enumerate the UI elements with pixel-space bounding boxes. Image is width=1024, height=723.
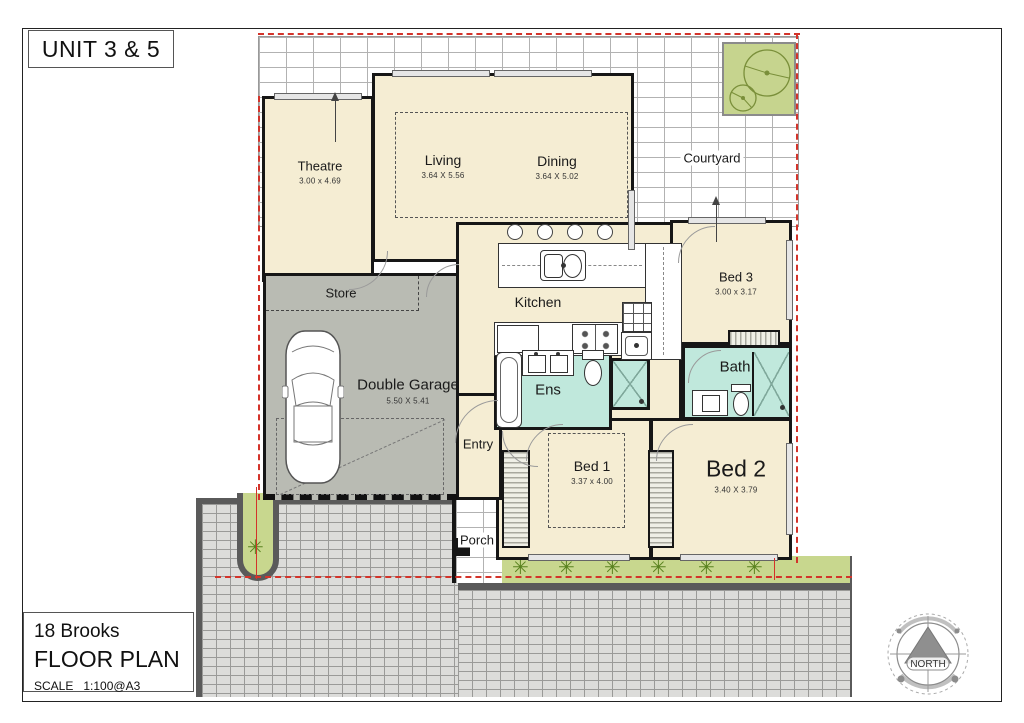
laundry-tub — [621, 332, 652, 360]
living-window-1 — [392, 70, 490, 77]
linen-cupboard — [728, 330, 780, 347]
ens-vanity — [522, 350, 574, 376]
exit-arrow-stem — [335, 100, 336, 142]
bath-vanity — [692, 390, 728, 416]
fridge-space — [497, 325, 539, 353]
doc-title: FLOOR PLAN — [34, 646, 183, 673]
bed2-robe — [648, 450, 674, 548]
ens-toilet-cistern — [582, 350, 604, 360]
car-icon — [282, 328, 344, 486]
shower-mid — [610, 358, 650, 410]
bed2-side-window — [786, 443, 793, 535]
counter-dash-line — [663, 247, 664, 355]
unit-title: UNIT 3 & 5 — [42, 36, 160, 63]
boundary-left — [258, 96, 260, 500]
plant-icon: ✳ — [512, 558, 529, 578]
bed3-side-window — [786, 240, 793, 320]
plant-icon: ✳ — [698, 558, 715, 578]
dining-door-window — [628, 190, 635, 250]
washing-machine — [622, 302, 652, 332]
stool-icon — [567, 224, 583, 240]
bath-shower — [752, 352, 789, 416]
driveway-paving — [196, 498, 458, 697]
living-window-2 — [494, 70, 592, 77]
title-block: 18 Brooks FLOOR PLAN SCALE 1:100@A3 — [23, 612, 194, 692]
courtyard-tree-icon — [722, 42, 796, 116]
boundary-tick — [774, 558, 775, 580]
boundary-top — [258, 33, 800, 35]
boundary-right — [796, 33, 798, 563]
scale-text: SCALE 1:100@A3 — [34, 679, 183, 693]
north-label: NORTH — [910, 659, 945, 670]
stool-icon — [507, 224, 523, 240]
kitchen-sink — [540, 250, 586, 281]
bath-toilet-cistern — [731, 384, 751, 392]
bathtub — [496, 352, 522, 428]
stool-icon — [537, 224, 553, 240]
ens-toilet — [584, 360, 602, 386]
plant-icon: ✳ — [650, 558, 667, 578]
exit-arrow-stem — [716, 204, 717, 242]
plant-icon: ✳ — [558, 558, 575, 578]
stool-icon — [597, 224, 613, 240]
plant-icon: ✳ — [604, 558, 621, 578]
bed3-window — [688, 217, 766, 224]
bed1-front-window — [528, 554, 630, 561]
plant-icon: ✳ — [746, 558, 763, 578]
living-dining-dash-outline — [395, 112, 628, 218]
boundary-centre-line — [256, 487, 257, 579]
bed2-front-window — [680, 554, 778, 561]
boundary-bottom — [215, 576, 852, 578]
floor-plan-sheet: ✳ ✳ ✳ ✳ ✳ ✳ ✳ — [0, 0, 1024, 723]
theatre-window — [274, 93, 362, 100]
footpath-paving — [458, 583, 852, 697]
address-text: 18 Brooks — [34, 621, 183, 643]
north-compass-icon: NORTH — [885, 611, 971, 697]
store-partition — [266, 276, 419, 311]
porch-pier — [452, 538, 470, 556]
unit-title-box: UNIT 3 & 5 — [28, 30, 174, 68]
bath-toilet — [733, 392, 749, 416]
